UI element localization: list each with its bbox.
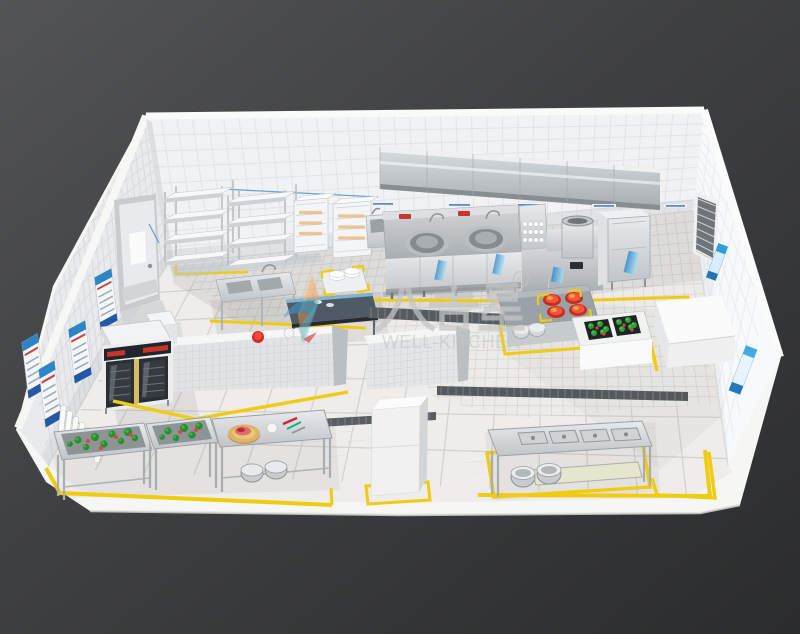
svg-text:WELL-KITCHEN: WELL-KITCHEN (382, 332, 521, 352)
svg-text:R: R (517, 276, 524, 287)
